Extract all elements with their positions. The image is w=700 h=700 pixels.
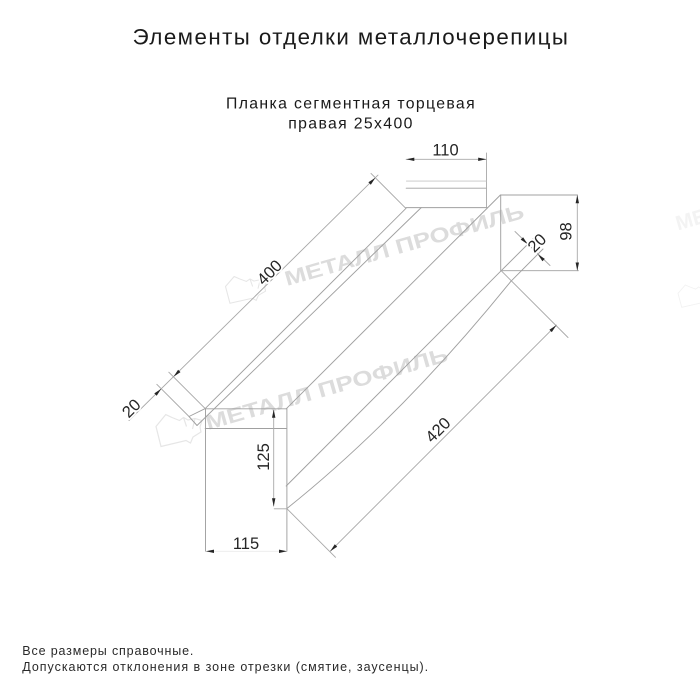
svg-text:110: 110 <box>432 142 458 160</box>
svg-text:98: 98 <box>558 222 576 240</box>
svg-text:Все размеры справочные.: Все размеры справочные. <box>22 644 194 658</box>
svg-text:Допускаются отклонения в зоне: Допускаются отклонения в зоне отрезки (с… <box>22 660 429 674</box>
svg-text:Планка сегментная торцевая: Планка сегментная торцевая <box>226 96 476 113</box>
svg-text:115: 115 <box>233 535 259 553</box>
svg-text:125: 125 <box>255 443 273 471</box>
svg-text:правая 25х400: правая 25х400 <box>288 116 413 133</box>
svg-text:Элементы отделки металлочерепи: Элементы отделки металлочерепицы <box>133 25 570 50</box>
